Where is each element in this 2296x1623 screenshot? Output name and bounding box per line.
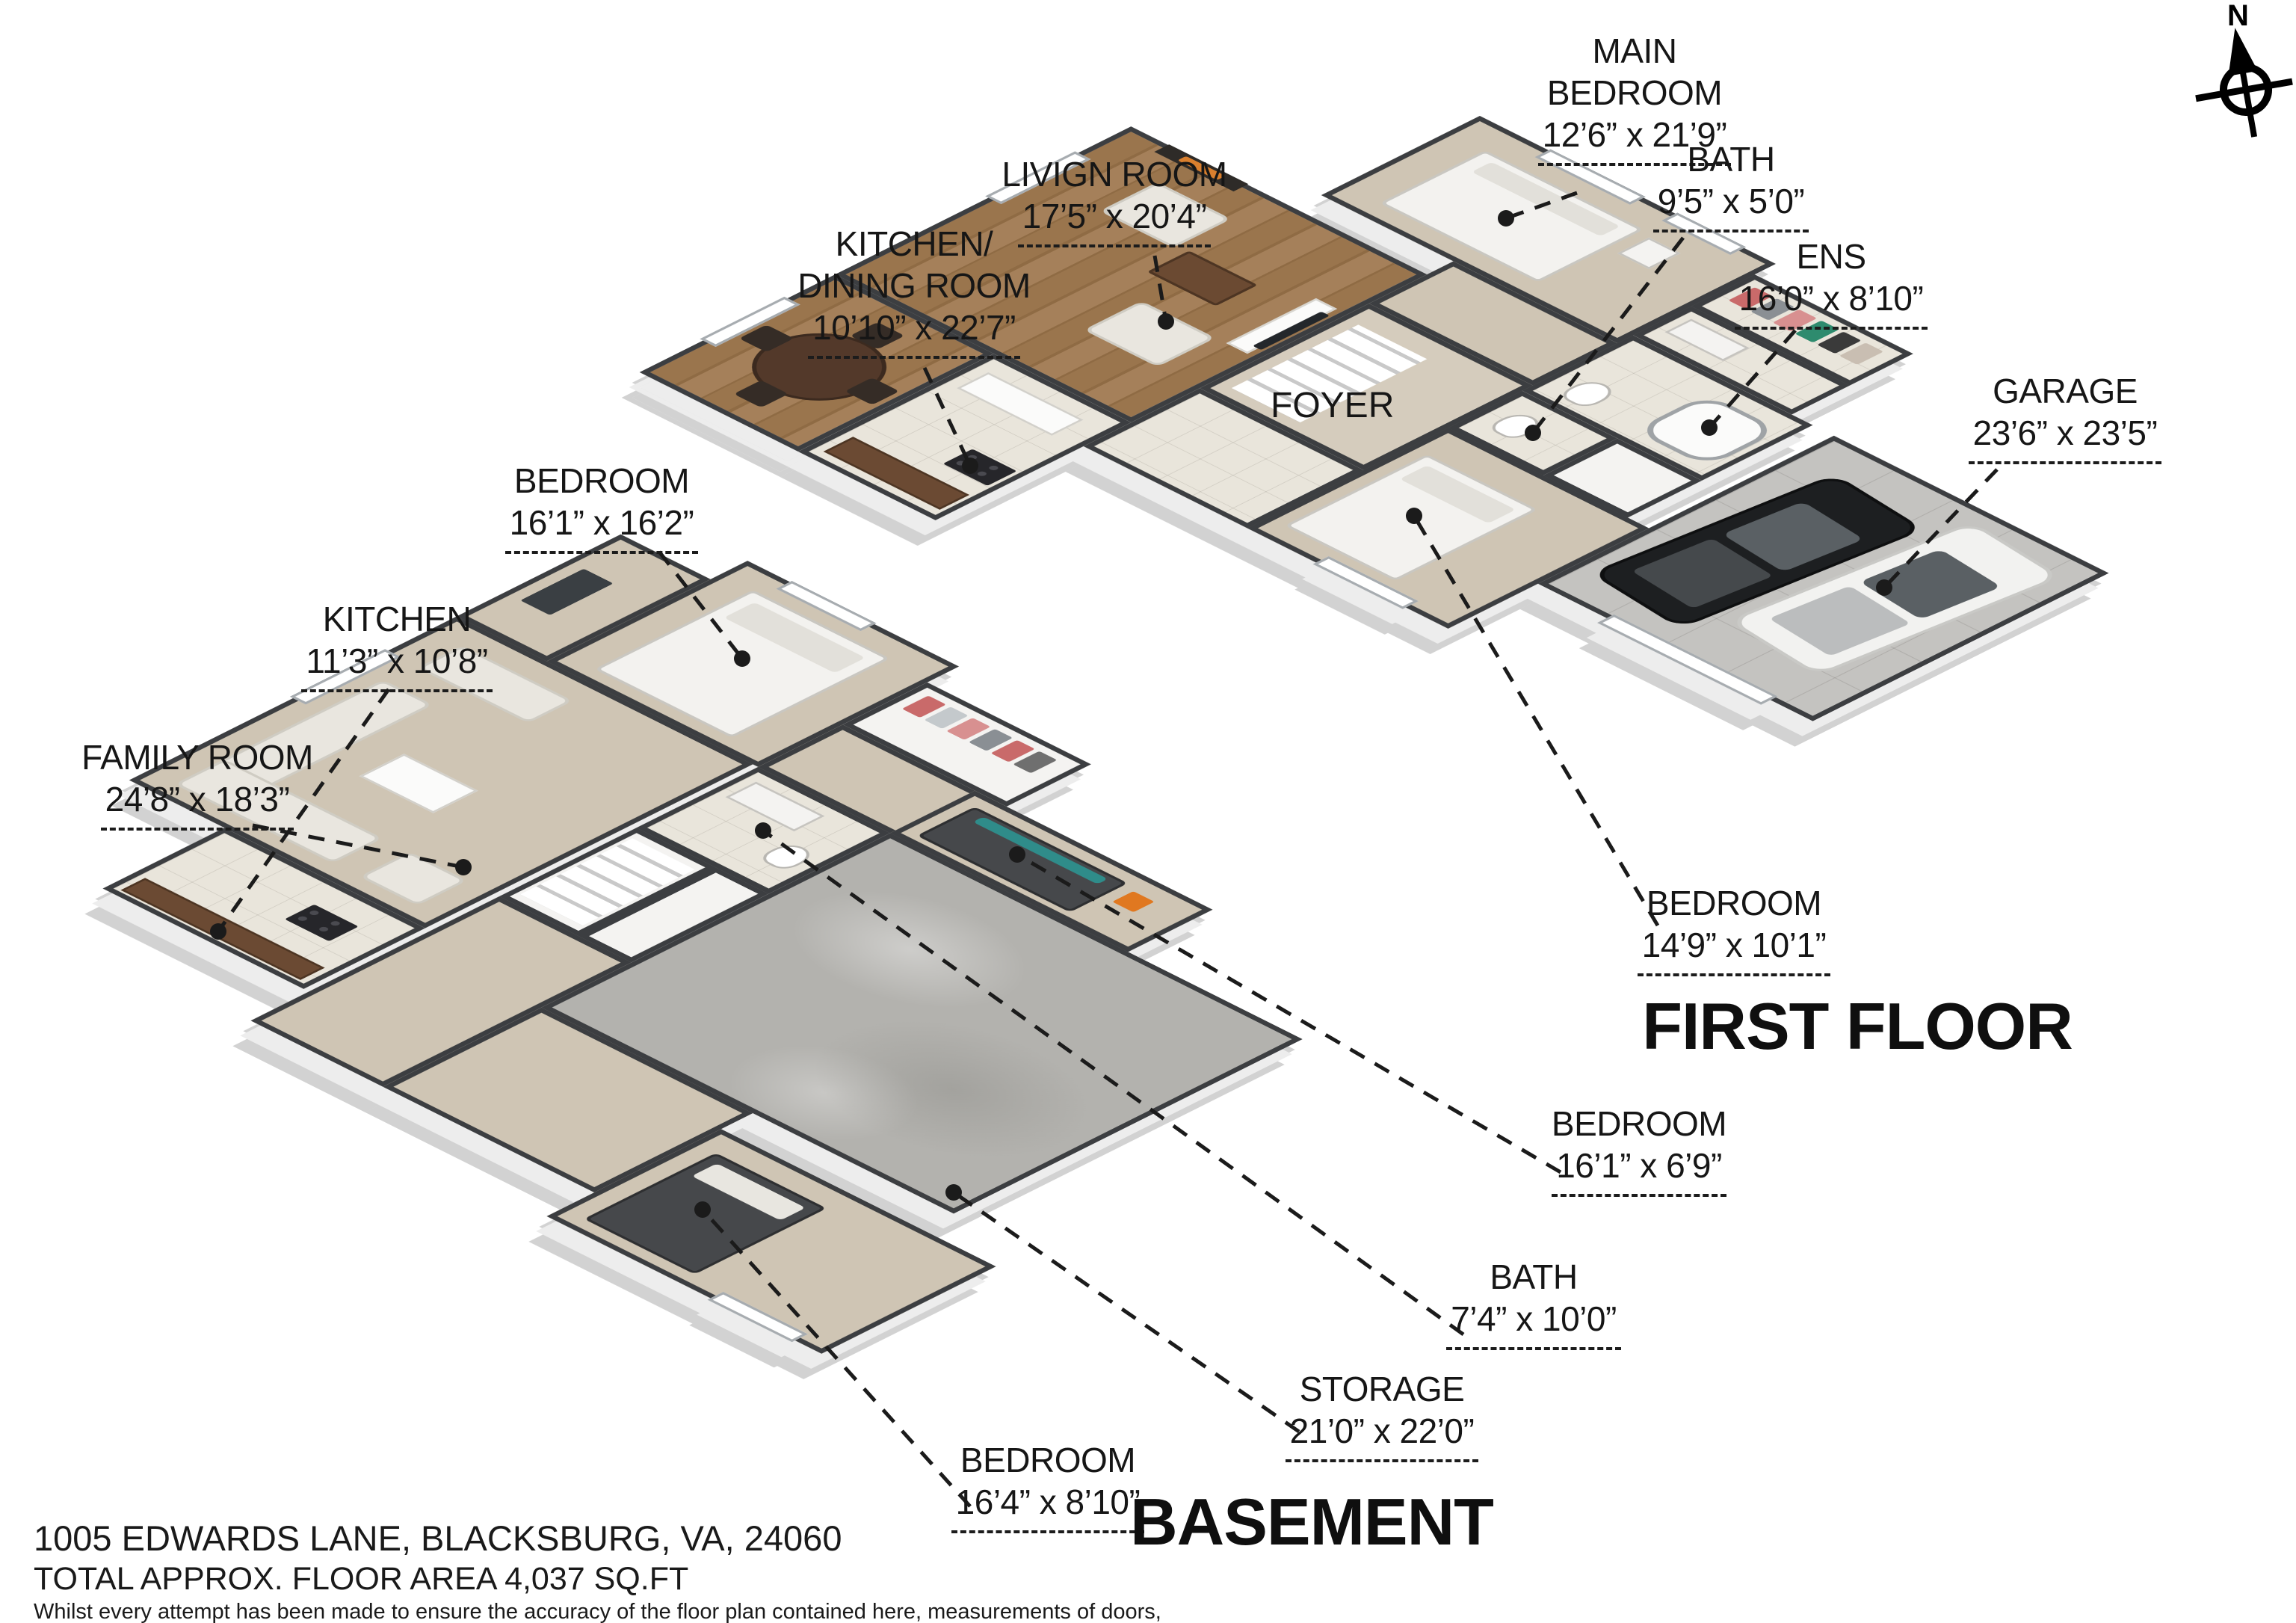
leader-bath-first — [1533, 238, 1683, 433]
room-name: KITCHEN/ — [780, 223, 1049, 265]
label-storage: STORAGE 21’0” x 22’0” — [1259, 1368, 1505, 1462]
room-name: BATH — [1619, 138, 1843, 180]
room-name: MAIN BEDROOM — [1519, 30, 1750, 114]
compass-rose: N — [2194, 1, 2295, 151]
leader-bath-basement — [763, 831, 1463, 1334]
room-name: BEDROOM — [921, 1439, 1175, 1481]
label-kitchen-dining: KITCHEN/ DINING ROOM 10’10” x 22’7” — [780, 223, 1049, 359]
leader-main-bedroom — [1506, 193, 1577, 218]
leader-storage — [954, 1192, 1299, 1432]
leader-dot — [945, 1184, 962, 1201]
room-dims: 23’6” x 23’5” — [1969, 412, 2162, 464]
leader-garage — [1884, 469, 1997, 588]
label-bedroom-north: BEDROOM 16’1” x 16’2” — [475, 460, 729, 554]
footer: 1005 EDWARDS LANE, BLACKSBURG, VA, 24060… — [34, 1518, 1225, 1623]
label-foyer: FOYER — [1271, 385, 1394, 426]
leader-dot — [1498, 210, 1514, 227]
room-dims: 16’1” x 16’2” — [505, 502, 699, 554]
leader-dot — [734, 650, 750, 667]
room-name: BEDROOM — [1516, 1103, 1762, 1145]
room-dims: 16’1” x 6’9” — [1552, 1145, 1726, 1197]
leader-dot — [694, 1201, 711, 1218]
room-name: BEDROOM — [475, 460, 729, 502]
leader-dot — [962, 458, 978, 474]
room-dims: 7’4” x 10’0” — [1446, 1298, 1621, 1350]
leader-kitchen-dining — [925, 368, 970, 466]
total-floor-area: TOTAL APPROX. FLOOR AREA 4,037 SQ.FT — [34, 1559, 1225, 1598]
room-dims: 11’3” x 10’8” — [301, 640, 492, 692]
leader-living — [1155, 256, 1166, 321]
room-name: KITCHEN — [277, 598, 516, 640]
leader-dot — [755, 822, 771, 839]
compass-north-label: N — [2227, 1, 2249, 32]
room-name: BATH — [1422, 1256, 1646, 1298]
room-dims: 14’9” x 10’1” — [1638, 924, 1831, 976]
leader-family-room — [253, 825, 463, 867]
property-address: 1005 EDWARDS LANE, BLACKSBURG, VA, 24060 — [34, 1518, 1225, 1559]
leader-bedroom-north — [659, 552, 742, 659]
room-dims: 9’5” x 5’0” — [1653, 180, 1809, 232]
room-name: ENS — [1712, 235, 1951, 277]
label-garage: GARAGE 23’6” x 23’5” — [1938, 370, 2192, 464]
label-family-room: FAMILY ROOM 24’8” x 18’3” — [63, 736, 332, 831]
room-name: DINING ROOM — [780, 265, 1049, 307]
label-bedroom-east: BEDROOM 16’1” x 6’9” — [1516, 1103, 1762, 1197]
room-dims: 16’0” x 8’10” — [1735, 277, 1928, 330]
leader-dot — [1876, 579, 1892, 596]
leader-bedroom-south-first — [1414, 516, 1658, 926]
first-floor-title: FIRST FLOOR — [1618, 988, 2096, 1065]
disclaimer-line: Whilst every attempt has been made to en… — [34, 1598, 1225, 1623]
leader-dot — [210, 923, 226, 940]
room-name: FAMILY ROOM — [63, 736, 332, 778]
room-name: STORAGE — [1259, 1368, 1505, 1410]
room-dims: 24’8” x 18’3” — [101, 778, 294, 831]
room-name: GARAGE — [1938, 370, 2192, 412]
leader-dot — [1406, 508, 1422, 524]
room-name: LIVIGN ROOM — [957, 153, 1271, 195]
label-bedroom-south-first: BEDROOM 14’9” x 10’1” — [1607, 882, 1861, 976]
room-dims: 10’10” x 22’7” — [808, 307, 1020, 359]
leader-dot — [455, 859, 472, 875]
leader-dot — [1525, 425, 1541, 441]
leader-bedroom-east — [1017, 854, 1561, 1172]
label-bath-first: BATH 9’5” x 5’0” — [1619, 138, 1843, 232]
label-ens: ENS 16’0” x 8’10” — [1712, 235, 1951, 330]
leader-dot — [1701, 419, 1718, 436]
compass-icon: N — [2194, 1, 2295, 155]
room-dims: 21’0” x 22’0” — [1286, 1410, 1479, 1462]
room-name: BEDROOM — [1607, 882, 1861, 924]
label-bath-basement: BATH 7’4” x 10’0” — [1422, 1256, 1646, 1350]
leader-dot — [1158, 313, 1174, 330]
leader-dot — [1009, 846, 1025, 863]
label-kitchen-basement: KITCHEN 11’3” x 10’8” — [277, 598, 516, 692]
north-arrow — [2221, 25, 2258, 76]
floor-plan-canvas: MAIN BEDROOM 12’6” x 21’9” BATH 9’5” x 5… — [0, 0, 2296, 1623]
leader-ens — [1709, 330, 1795, 428]
